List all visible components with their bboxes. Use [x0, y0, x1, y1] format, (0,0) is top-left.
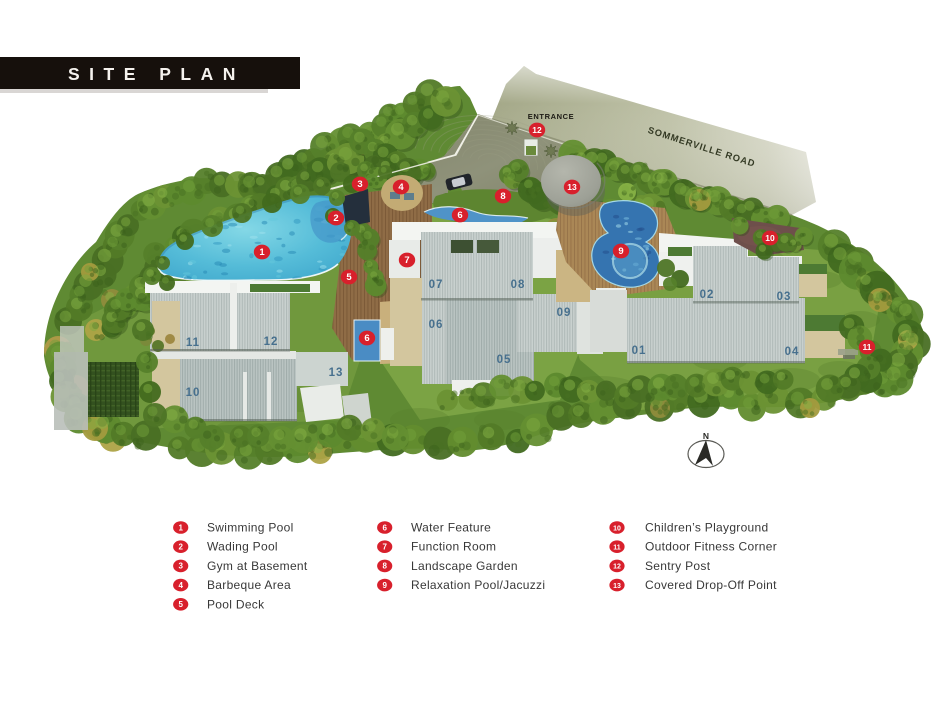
svg-text:09: 09 [557, 307, 572, 319]
svg-text:8: 8 [382, 562, 387, 571]
svg-text:6: 6 [382, 523, 387, 532]
svg-text:10: 10 [613, 525, 621, 532]
svg-text:Covered Drop-Off Point: Covered Drop-Off Point [645, 578, 777, 592]
svg-text:13: 13 [329, 367, 344, 379]
svg-text:06: 06 [429, 319, 444, 331]
svg-text:4: 4 [178, 581, 183, 590]
svg-text:10: 10 [765, 233, 775, 243]
svg-text:11: 11 [863, 342, 872, 352]
svg-text:Sentry Post: Sentry Post [645, 559, 711, 573]
svg-text:11: 11 [613, 545, 621, 552]
svg-text:7: 7 [382, 543, 387, 552]
svg-text:Wading Pool: Wading Pool [207, 540, 278, 554]
svg-text:13: 13 [567, 182, 577, 192]
svg-text:Barbeque Area: Barbeque Area [207, 578, 291, 592]
svg-text:12: 12 [613, 564, 621, 571]
svg-text:12: 12 [264, 336, 279, 348]
svg-text:08: 08 [511, 279, 526, 291]
svg-text:5: 5 [178, 600, 183, 609]
svg-text:6: 6 [364, 333, 369, 344]
svg-text:N: N [703, 431, 709, 441]
svg-text:1: 1 [259, 247, 265, 258]
svg-text:Gym at Basement: Gym at Basement [207, 559, 308, 573]
svg-text:6: 6 [457, 210, 462, 221]
svg-text:1: 1 [178, 523, 183, 532]
svg-text:7: 7 [404, 255, 409, 266]
svg-text:13: 13 [613, 583, 621, 590]
svg-text:11: 11 [186, 337, 200, 349]
svg-text:9: 9 [382, 581, 387, 590]
svg-text:10: 10 [186, 387, 201, 399]
svg-text:3: 3 [357, 179, 362, 190]
svg-text:Children’s Playground: Children’s Playground [645, 521, 768, 535]
svg-text:Landscape Garden: Landscape Garden [411, 559, 518, 573]
svg-text:Pool Deck: Pool Deck [207, 597, 265, 611]
svg-text:SITE PLAN: SITE PLAN [68, 64, 245, 84]
svg-text:07: 07 [429, 279, 444, 291]
svg-text:12: 12 [532, 125, 542, 135]
svg-text:5: 5 [346, 272, 352, 283]
svg-text:01: 01 [632, 345, 647, 357]
svg-text:3: 3 [178, 562, 183, 571]
svg-text:Swimming Pool: Swimming Pool [207, 521, 294, 535]
svg-text:9: 9 [618, 246, 623, 257]
svg-text:2: 2 [178, 543, 183, 552]
svg-text:8: 8 [500, 191, 505, 202]
svg-text:Relaxation Pool/Jacuzzi: Relaxation Pool/Jacuzzi [411, 578, 545, 592]
svg-text:4: 4 [398, 182, 404, 193]
svg-text:ENTRANCE: ENTRANCE [528, 112, 574, 121]
svg-text:02: 02 [700, 289, 715, 301]
svg-text:Function Room: Function Room [411, 540, 496, 554]
svg-text:05: 05 [497, 354, 512, 366]
svg-text:Water Feature: Water Feature [411, 521, 491, 535]
svg-text:2: 2 [333, 213, 338, 224]
svg-text:04: 04 [785, 346, 800, 358]
svg-text:Outdoor Fitness Corner: Outdoor Fitness Corner [645, 540, 777, 554]
